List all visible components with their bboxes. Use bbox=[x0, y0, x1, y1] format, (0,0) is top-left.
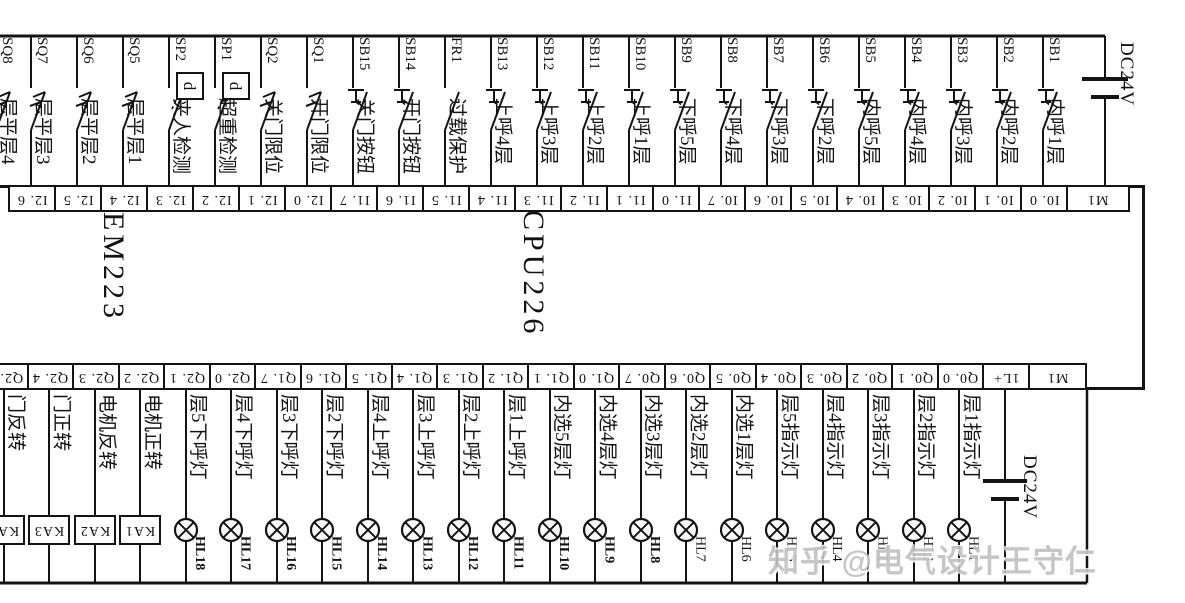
device-desc-label: 上呼4层 bbox=[492, 98, 513, 165]
terminal-label: Q2. 3 bbox=[78, 369, 114, 385]
device-id-label: SP1 bbox=[216, 37, 236, 61]
device-desc-label: 内呼4层 bbox=[906, 98, 927, 165]
input-terminal: I1. 2 bbox=[560, 185, 606, 212]
output-terminal: Q2. 5 bbox=[0, 363, 27, 390]
device-id-label: SB11 bbox=[584, 37, 604, 70]
terminal-label: I0. 1 bbox=[983, 191, 1014, 207]
device-desc-label: 层2下呼灯 bbox=[323, 394, 344, 480]
device-id-label: SB6 bbox=[814, 37, 834, 63]
device-desc-label: 层1指示灯 bbox=[960, 394, 981, 480]
lamp-id-label: HL7 bbox=[689, 536, 710, 562]
device-desc-label: 层4下呼灯 bbox=[232, 394, 253, 480]
terminal-label: Q2. 5 bbox=[0, 369, 23, 385]
input-terminal: I0. 2 bbox=[928, 185, 974, 212]
device-desc-label: 层5指示灯 bbox=[778, 394, 799, 480]
device-desc-label: 下呼5层 bbox=[676, 98, 697, 165]
terminal-label: 1L+ bbox=[993, 369, 1019, 385]
device-desc-label: 内呼1层 bbox=[1044, 98, 1065, 165]
device-desc-label: 层3指示灯 bbox=[869, 394, 890, 480]
terminal-label: I1. 6 bbox=[385, 191, 416, 207]
lamp-id-label: HL13 bbox=[416, 536, 437, 570]
device-id-label: SB3 bbox=[952, 37, 972, 63]
device-desc-label: 层4上呼灯 bbox=[369, 394, 390, 480]
device-id-label: SQ1 bbox=[308, 37, 328, 64]
lamp-id-label: HL8 bbox=[644, 536, 665, 563]
lamp-id-label: HL17 bbox=[234, 536, 255, 570]
input-terminal: I0. 3 bbox=[882, 185, 928, 212]
lamp-id-label: HL16 bbox=[280, 536, 301, 570]
input-terminal: I1. 3 bbox=[514, 185, 560, 212]
terminal-label: Q0. 7 bbox=[624, 369, 660, 385]
output-terminal: Q1. 2 bbox=[482, 363, 528, 390]
dc24v-label-bottom: DC24V bbox=[1018, 455, 1040, 519]
device-id-label: SQ7 bbox=[32, 37, 52, 64]
output-terminal: Q2. 4 bbox=[27, 363, 73, 390]
device-id-label: SB10 bbox=[630, 37, 650, 70]
device-desc-label: 门正转 bbox=[50, 394, 71, 451]
output-terminal: Q0. 0 bbox=[937, 363, 983, 390]
device-id-label: SB2 bbox=[998, 37, 1018, 63]
terminal-label: Q2. 0 bbox=[214, 369, 250, 385]
output-terminal: Q0. 1 bbox=[891, 363, 937, 390]
output-terminal: Q0. 4 bbox=[755, 363, 801, 390]
output-terminal: Q1. 3 bbox=[436, 363, 482, 390]
terminal-label: M1 bbox=[1047, 369, 1068, 385]
input-terminal: I0. 6 bbox=[744, 185, 790, 212]
terminal-label: Q1. 5 bbox=[351, 369, 387, 385]
device-desc-label: 夹人检测 bbox=[170, 98, 191, 174]
device-id-label: SB1 bbox=[1044, 37, 1064, 63]
terminal-label: M1 bbox=[1087, 191, 1108, 207]
terminal-label: I0. 3 bbox=[891, 191, 922, 207]
input-terminal: I1. 7 bbox=[330, 185, 376, 212]
terminal-label: I2. 1 bbox=[247, 191, 278, 207]
terminal-label: I1. 3 bbox=[523, 191, 554, 207]
terminal-label: I2. 5 bbox=[63, 191, 94, 207]
device-desc-label: 内选5层灯 bbox=[551, 394, 572, 480]
terminal-label: I2. 2 bbox=[201, 191, 232, 207]
lamp-id-label: HL15 bbox=[325, 536, 346, 570]
input-terminal: I2. 4 bbox=[100, 185, 146, 212]
input-terminal: I2. 1 bbox=[238, 185, 284, 212]
terminal-label: Q0. 3 bbox=[806, 369, 842, 385]
terminal-label: Q1. 6 bbox=[305, 369, 341, 385]
terminal-label: I0. 2 bbox=[937, 191, 968, 207]
device-desc-label: 下呼3层 bbox=[768, 98, 789, 165]
module-label-cpu226: CPU226 bbox=[516, 210, 550, 337]
device-desc-label: 上呼2层 bbox=[584, 98, 605, 165]
terminal-label: I1. 2 bbox=[569, 191, 600, 207]
output-terminal: M1 bbox=[1028, 363, 1088, 390]
terminal-label: Q0. 4 bbox=[760, 369, 796, 385]
device-id-label: SB9 bbox=[676, 37, 696, 63]
terminal-label: Q1. 4 bbox=[396, 369, 432, 385]
device-desc-label: 电机反转 bbox=[96, 394, 117, 470]
device-desc-label: 层3上呼灯 bbox=[414, 394, 435, 480]
terminal-label: I1. 5 bbox=[431, 191, 462, 207]
device-desc-label: 层4指示灯 bbox=[824, 394, 845, 480]
input-terminal: I0. 1 bbox=[974, 185, 1020, 212]
input-terminal: I1. 6 bbox=[376, 185, 422, 212]
plc-body bbox=[0, 185, 1145, 390]
device-id-label: SB13 bbox=[492, 37, 512, 70]
device-desc-label: 内呼2层 bbox=[998, 98, 1019, 165]
input-terminal: I2. 2 bbox=[192, 185, 238, 212]
device-desc-label: 层平层3 bbox=[32, 98, 53, 165]
input-device-column: SB1内呼1层 bbox=[1023, 35, 1079, 185]
terminal-label: I0. 0 bbox=[1029, 191, 1060, 207]
output-terminal: Q1. 1 bbox=[527, 363, 573, 390]
input-terminal: I0. 7 bbox=[698, 185, 744, 212]
module-label-em223: EM223 bbox=[96, 212, 130, 322]
terminal-label: I2. 6 bbox=[17, 191, 48, 207]
terminal-label: Q2. 2 bbox=[123, 369, 159, 385]
device-id-label: SB14 bbox=[400, 37, 420, 70]
output-terminal: Q1. 6 bbox=[300, 363, 346, 390]
device-desc-label: 下呼4层 bbox=[722, 98, 743, 165]
terminal-label: I2. 0 bbox=[293, 191, 324, 207]
terminal-label: I0. 4 bbox=[845, 191, 876, 207]
device-desc-label: 内呼5层 bbox=[860, 98, 881, 165]
output-terminal: Q0. 2 bbox=[846, 363, 892, 390]
device-desc-label: 开门按钮 bbox=[400, 98, 421, 174]
output-terminal: Q1. 0 bbox=[573, 363, 619, 390]
output-terminal: Q0. 5 bbox=[709, 363, 755, 390]
terminal-label: Q1. 0 bbox=[578, 369, 614, 385]
terminal-label: Q0. 2 bbox=[851, 369, 887, 385]
terminal-label: Q1. 7 bbox=[260, 369, 296, 385]
device-desc-label: 层平层2 bbox=[78, 98, 99, 165]
device-desc-label: 层3下呼灯 bbox=[278, 394, 299, 480]
device-desc-label: 开门限位 bbox=[308, 98, 329, 174]
output-terminal: Q2. 2 bbox=[118, 363, 164, 390]
input-terminal: I1. 0 bbox=[652, 185, 698, 212]
input-terminal: I1. 5 bbox=[422, 185, 468, 212]
device-desc-label: 层平层1 bbox=[124, 98, 145, 165]
relay-id-label: KA4 bbox=[0, 516, 24, 544]
input-terminal: I2. 6 bbox=[8, 185, 54, 212]
output-terminal: Q1. 4 bbox=[391, 363, 437, 390]
device-id-label: SB8 bbox=[722, 37, 742, 63]
terminal-label: Q1. 1 bbox=[533, 369, 569, 385]
terminal-label: I2. 4 bbox=[109, 191, 140, 207]
output-terminal: 1L+ bbox=[982, 363, 1028, 390]
device-desc-label: 超重检测 bbox=[216, 98, 237, 174]
dc24v-label-top: DC24V bbox=[1115, 42, 1137, 106]
wiring-diagram: EM223 CPU226 DC24V DC24V I2. 6I2. 5I2. 4… bbox=[0, 0, 1185, 603]
device-desc-label: 关门按钮 bbox=[354, 98, 375, 174]
output-terminal: Q2. 3 bbox=[72, 363, 118, 390]
device-desc-label: 下呼2层 bbox=[814, 98, 835, 165]
output-terminal: Q0. 3 bbox=[800, 363, 846, 390]
terminal-label: Q1. 2 bbox=[487, 369, 523, 385]
relay-id-label: KA1 bbox=[120, 516, 160, 544]
terminal-label: Q2. 4 bbox=[32, 369, 68, 385]
device-desc-label: 层5下呼灯 bbox=[187, 394, 208, 480]
output-terminal: Q2. 1 bbox=[163, 363, 209, 390]
input-terminal: I0. 4 bbox=[836, 185, 882, 212]
input-terminal: I1. 1 bbox=[606, 185, 652, 212]
device-desc-label: 层1上呼灯 bbox=[505, 394, 526, 480]
device-id-label: SB4 bbox=[906, 37, 926, 63]
device-id-label: SB12 bbox=[538, 37, 558, 70]
device-id-label: SQ2 bbox=[262, 37, 282, 64]
input-terminal: M1 bbox=[1066, 185, 1130, 212]
device-desc-label: 电机正转 bbox=[141, 394, 162, 470]
input-terminal: I2. 3 bbox=[146, 185, 192, 212]
device-id-label: SQ5 bbox=[124, 37, 144, 64]
lamp-id-label: HL11 bbox=[507, 536, 528, 569]
input-terminal: I2. 5 bbox=[54, 185, 100, 212]
terminal-label: Q0. 0 bbox=[942, 369, 978, 385]
terminal-label: I0. 5 bbox=[799, 191, 830, 207]
terminal-label: I1. 0 bbox=[661, 191, 692, 207]
output-terminal: Q0. 7 bbox=[618, 363, 664, 390]
device-id-label: FR1 bbox=[446, 37, 466, 63]
device-desc-label: 内呼3层 bbox=[952, 98, 973, 165]
output-terminal: Q1. 5 bbox=[345, 363, 391, 390]
device-desc-label: 内选3层灯 bbox=[642, 394, 663, 480]
terminal-label: Q1. 3 bbox=[442, 369, 478, 385]
output-terminal: Q1. 7 bbox=[254, 363, 300, 390]
lamp-id-label: HL18 bbox=[189, 536, 210, 570]
device-desc-label: 内选4层灯 bbox=[596, 394, 617, 480]
lamp-id-label: HL9 bbox=[598, 536, 619, 563]
terminal-label: Q0. 6 bbox=[669, 369, 705, 385]
output-terminal: Q0. 6 bbox=[664, 363, 710, 390]
device-id-label: SP2 bbox=[170, 37, 190, 61]
device-desc-label: 层2指示灯 bbox=[915, 394, 936, 480]
terminal-label: I0. 6 bbox=[753, 191, 784, 207]
terminal-label: I1. 7 bbox=[339, 191, 370, 207]
terminal-label: I1. 1 bbox=[615, 191, 646, 207]
output-terminal: Q2. 0 bbox=[209, 363, 255, 390]
lamp-id-label: HL12 bbox=[462, 536, 483, 570]
device-desc-label: 关门限位 bbox=[262, 98, 283, 174]
lamp-id-label: HL6 bbox=[735, 536, 756, 562]
terminal-label: Q2. 1 bbox=[169, 369, 205, 385]
device-id-label: SQ6 bbox=[78, 37, 98, 64]
device-desc-label: 门反转 bbox=[5, 394, 26, 451]
lamp-id-label: HL10 bbox=[553, 536, 574, 570]
input-terminal: I0. 0 bbox=[1020, 185, 1066, 212]
device-desc-label: 层2上呼灯 bbox=[460, 394, 481, 480]
device-desc-label: 上呼1层 bbox=[630, 98, 651, 165]
input-terminal: I2. 0 bbox=[284, 185, 330, 212]
watermark: 知乎 @电气设计王守仁 bbox=[768, 536, 1097, 581]
device-id-label: SB5 bbox=[860, 37, 880, 63]
device-desc-label: 内选2层灯 bbox=[687, 394, 708, 480]
device-desc-label: 过载保护 bbox=[446, 98, 467, 174]
terminal-label: I0. 7 bbox=[707, 191, 738, 207]
relay-id-label: KA3 bbox=[29, 516, 69, 544]
device-desc-label: 内选1层灯 bbox=[733, 394, 754, 480]
device-id-label: SB7 bbox=[768, 37, 788, 63]
input-terminal: I0. 5 bbox=[790, 185, 836, 212]
relay-id-label: KA2 bbox=[75, 516, 115, 544]
device-desc-label: 上呼3层 bbox=[538, 98, 559, 165]
lamp-id-label: HL14 bbox=[371, 536, 392, 570]
terminal-label: I1. 4 bbox=[477, 191, 508, 207]
device-id-label: SB15 bbox=[354, 37, 374, 70]
input-terminal: I1. 4 bbox=[468, 185, 514, 212]
terminal-label: Q0. 5 bbox=[715, 369, 751, 385]
terminal-label: I2. 3 bbox=[155, 191, 186, 207]
terminal-label: Q0. 1 bbox=[897, 369, 933, 385]
